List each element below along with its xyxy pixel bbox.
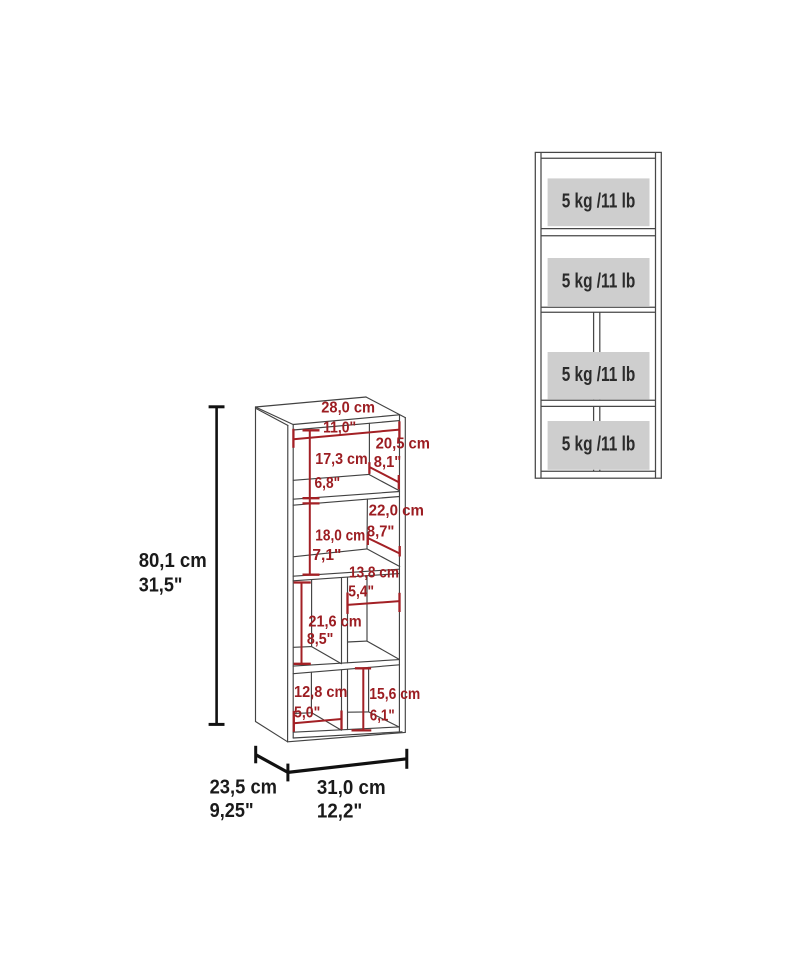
svg-text:21,6 cm: 21,6 cm <box>308 613 361 630</box>
svg-text:31,0 cm: 31,0 cm <box>317 777 386 799</box>
svg-text:20,5 cm: 20,5 cm <box>376 436 430 453</box>
svg-text:5 kg /11 lb: 5 kg /11 lb <box>562 434 636 456</box>
svg-text:5 kg /11 lb: 5 kg /11 lb <box>562 191 636 213</box>
svg-text:80,1 cm: 80,1 cm <box>139 550 207 572</box>
svg-text:12,8 cm: 12,8 cm <box>294 684 347 701</box>
svg-text:31,5": 31,5" <box>139 574 183 596</box>
svg-text:8,1": 8,1" <box>374 454 402 471</box>
svg-text:7,1": 7,1" <box>312 547 341 564</box>
svg-text:22,0 cm: 22,0 cm <box>369 502 424 519</box>
svg-text:5 kg /11 lb: 5 kg /11 lb <box>562 270 636 292</box>
svg-text:12,2": 12,2" <box>317 800 362 822</box>
svg-text:15,6 cm: 15,6 cm <box>369 686 420 703</box>
svg-text:17,3 cm: 17,3 cm <box>315 451 367 468</box>
svg-text:28,0 cm: 28,0 cm <box>321 400 375 417</box>
svg-text:9,25": 9,25" <box>210 800 254 822</box>
svg-text:5,0": 5,0" <box>294 705 320 722</box>
svg-text:6,8": 6,8" <box>315 475 341 492</box>
svg-text:13,8 cm: 13,8 cm <box>349 565 399 582</box>
svg-text:5 kg /11 lb: 5 kg /11 lb <box>562 364 636 386</box>
svg-text:8,7": 8,7" <box>367 524 395 541</box>
svg-text:8,5": 8,5" <box>307 631 334 648</box>
svg-text:11,0": 11,0" <box>323 420 356 437</box>
svg-text:5,4": 5,4" <box>348 583 374 600</box>
svg-text:6,1": 6,1" <box>370 707 395 724</box>
svg-text:18,0 cm: 18,0 cm <box>315 528 365 545</box>
svg-text:23,5 cm: 23,5 cm <box>210 776 277 798</box>
